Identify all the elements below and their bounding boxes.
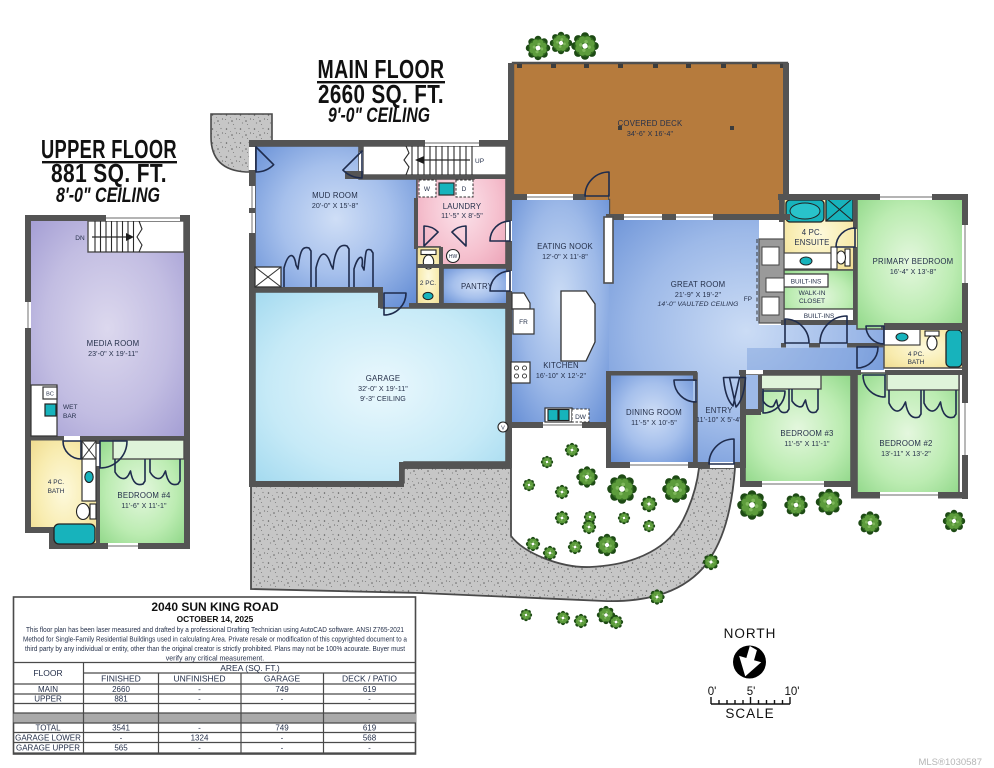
svg-text:BUILT-INS: BUILT-INS	[804, 313, 835, 320]
svg-text:565: 565	[114, 744, 128, 753]
svg-text:11'-10" X 5'-4": 11'-10" X 5'-4"	[696, 416, 742, 424]
svg-text:23'-0" X 19'-11": 23'-0" X 19'-11"	[88, 350, 138, 358]
svg-text:SCALE: SCALE	[725, 706, 774, 721]
svg-text:Method for Single-Family Resid: Method for Single-Family Residential Bui…	[23, 637, 407, 644]
svg-text:13'-11" X 13'-2": 13'-11" X 13'-2"	[881, 450, 931, 458]
svg-text:BC: BC	[46, 392, 54, 398]
svg-text:AREA (SQ. FT.): AREA (SQ. FT.)	[220, 663, 280, 673]
svg-text:MLS®1030587: MLS®1030587	[918, 757, 982, 768]
svg-text:749: 749	[275, 724, 289, 733]
svg-text:1324: 1324	[191, 734, 209, 743]
svg-text:NORTH: NORTH	[724, 626, 777, 641]
svg-text:WALK-IN: WALK-IN	[799, 290, 826, 297]
svg-text:8'-0" CEILING: 8'-0" CEILING	[56, 184, 160, 207]
svg-text:ENTRY: ENTRY	[705, 406, 733, 415]
svg-text:BATH: BATH	[48, 488, 65, 495]
svg-text:GARAGE UPPER: GARAGE UPPER	[16, 744, 80, 753]
svg-text:9'-0" CEILING: 9'-0" CEILING	[328, 104, 430, 127]
svg-text:11'-5" X 11'-1": 11'-5" X 11'-1"	[784, 440, 830, 448]
svg-text:FP: FP	[744, 296, 752, 303]
svg-text:PANTRY: PANTRY	[461, 282, 494, 291]
svg-text:4 PC.: 4 PC.	[908, 351, 924, 358]
svg-text:GARAGE: GARAGE	[264, 674, 301, 684]
svg-text:2660: 2660	[112, 685, 130, 694]
svg-text:GARAGE: GARAGE	[366, 374, 401, 383]
svg-text:-: -	[198, 744, 201, 753]
svg-text:12'-0" X 11'-8": 12'-0" X 11'-8"	[542, 253, 588, 261]
svg-text:10': 10'	[785, 686, 800, 698]
svg-text:568: 568	[363, 734, 377, 743]
svg-text:third party by any individual: third party by any individual or entity,…	[25, 646, 405, 653]
svg-text:9'-3" CEILING: 9'-3" CEILING	[360, 395, 406, 403]
svg-text:BEDROOM #4: BEDROOM #4	[117, 491, 171, 500]
svg-text:BEDROOM #3: BEDROOM #3	[780, 429, 833, 438]
svg-text:KITCHEN: KITCHEN	[543, 361, 579, 370]
svg-text:34'-6" X 16'-4": 34'-6" X 16'-4"	[627, 130, 674, 138]
svg-text:TOTAL: TOTAL	[35, 724, 61, 733]
svg-text:3541: 3541	[112, 724, 130, 733]
svg-text:FR: FR	[519, 319, 528, 326]
svg-text:DW: DW	[575, 414, 587, 421]
svg-text:FINISHED: FINISHED	[101, 674, 141, 684]
svg-text:OCTOBER 14, 2025: OCTOBER 14, 2025	[177, 614, 254, 624]
svg-text:32'-0" X 19'-11": 32'-0" X 19'-11"	[358, 385, 408, 393]
svg-text:619: 619	[363, 724, 377, 733]
svg-text:14'-0" VAULTED CEILING: 14'-0" VAULTED CEILING	[658, 301, 739, 308]
svg-text:WET: WET	[63, 404, 77, 411]
svg-text:0': 0'	[708, 686, 717, 698]
svg-text:GREAT ROOM: GREAT ROOM	[671, 280, 726, 289]
svg-text:-: -	[281, 734, 284, 743]
svg-text:HW: HW	[449, 254, 458, 260]
svg-text:881: 881	[114, 695, 128, 704]
svg-text:-: -	[198, 685, 201, 694]
svg-text:2040 SUN KING ROAD: 2040 SUN KING ROAD	[151, 600, 279, 614]
svg-text:MUD ROOM: MUD ROOM	[312, 191, 358, 200]
svg-text:D: D	[462, 186, 467, 193]
svg-text:BUILT-INS: BUILT-INS	[791, 279, 822, 286]
svg-text:V: V	[501, 426, 505, 432]
svg-text:verify any critical measuremen: verify any critical measurement.	[166, 656, 264, 663]
svg-text:11'-6" X 11'-1": 11'-6" X 11'-1"	[121, 502, 167, 510]
svg-text:21'-9" X 19'-2": 21'-9" X 19'-2"	[675, 291, 722, 299]
svg-text:MAIN: MAIN	[38, 685, 58, 694]
svg-text:16'-4" X 13'-8": 16'-4" X 13'-8"	[890, 268, 937, 276]
svg-text:UNFINISHED: UNFINISHED	[174, 674, 226, 684]
svg-text:This floor plan has been laser: This floor plan has been laser measured …	[26, 627, 404, 634]
svg-text:UPPER: UPPER	[34, 695, 62, 704]
svg-text:CLOSET: CLOSET	[799, 298, 825, 305]
svg-text:619: 619	[363, 685, 377, 694]
svg-text:W: W	[424, 186, 431, 193]
svg-text:BEDROOM #2: BEDROOM #2	[879, 439, 932, 448]
svg-text:2 PC.: 2 PC.	[420, 280, 436, 287]
svg-text:-: -	[281, 744, 284, 753]
svg-text:20'-0" X 15'-8": 20'-0" X 15'-8"	[312, 202, 359, 210]
svg-text:16'-10" X 12'-2": 16'-10" X 12'-2"	[536, 372, 587, 380]
svg-text:FLOOR: FLOOR	[33, 668, 62, 678]
svg-text:-: -	[368, 695, 371, 704]
svg-text:BATH: BATH	[908, 359, 925, 366]
svg-text:DECK / PATIO: DECK / PATIO	[342, 674, 397, 684]
svg-text:UP: UP	[475, 158, 484, 165]
svg-text:-: -	[198, 695, 201, 704]
svg-text:LAUNDRY: LAUNDRY	[443, 202, 482, 211]
svg-text:-: -	[368, 744, 371, 753]
svg-text:4 PC.: 4 PC.	[48, 479, 64, 486]
svg-text:PRIMARY BEDROOM: PRIMARY BEDROOM	[873, 257, 954, 266]
svg-text:DINING ROOM: DINING ROOM	[626, 408, 682, 417]
svg-text:-: -	[198, 724, 201, 733]
svg-text:MEDIA ROOM: MEDIA ROOM	[87, 339, 140, 348]
svg-text:GARAGE LOWER: GARAGE LOWER	[15, 734, 81, 743]
svg-text:11'-5" X 10'-5": 11'-5" X 10'-5"	[631, 419, 677, 427]
svg-text:COVERED DECK: COVERED DECK	[618, 119, 683, 128]
svg-text:5': 5'	[747, 686, 756, 698]
svg-text:BAR: BAR	[63, 413, 77, 420]
svg-text:749: 749	[275, 685, 289, 694]
svg-text:-: -	[120, 734, 123, 743]
svg-text:11'-5" X 8'-5": 11'-5" X 8'-5"	[441, 212, 483, 220]
svg-text:-: -	[281, 695, 284, 704]
svg-text:4 PC.: 4 PC.	[802, 228, 823, 237]
svg-text:EATING NOOK: EATING NOOK	[537, 242, 593, 251]
svg-text:DN: DN	[75, 235, 85, 242]
svg-text:ENSUITE: ENSUITE	[794, 238, 829, 247]
